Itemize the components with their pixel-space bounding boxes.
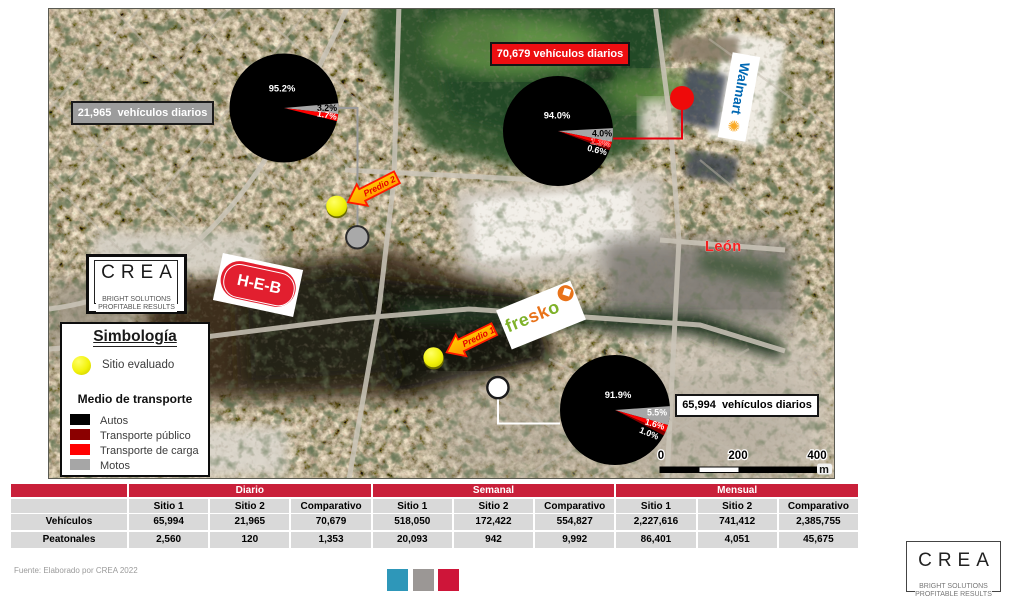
- svg-text:200: 200: [728, 450, 747, 462]
- svg-text:91.9%: 91.9%: [605, 389, 632, 400]
- svg-text:5.5%: 5.5%: [647, 408, 667, 418]
- svg-text:León: León: [705, 239, 742, 255]
- svg-text:0: 0: [658, 450, 664, 462]
- svg-text:95.2%: 95.2%: [269, 83, 296, 94]
- svg-text:400: 400: [807, 450, 826, 462]
- svg-text:m: m: [819, 464, 829, 476]
- svg-text:94.0%: 94.0%: [544, 110, 571, 121]
